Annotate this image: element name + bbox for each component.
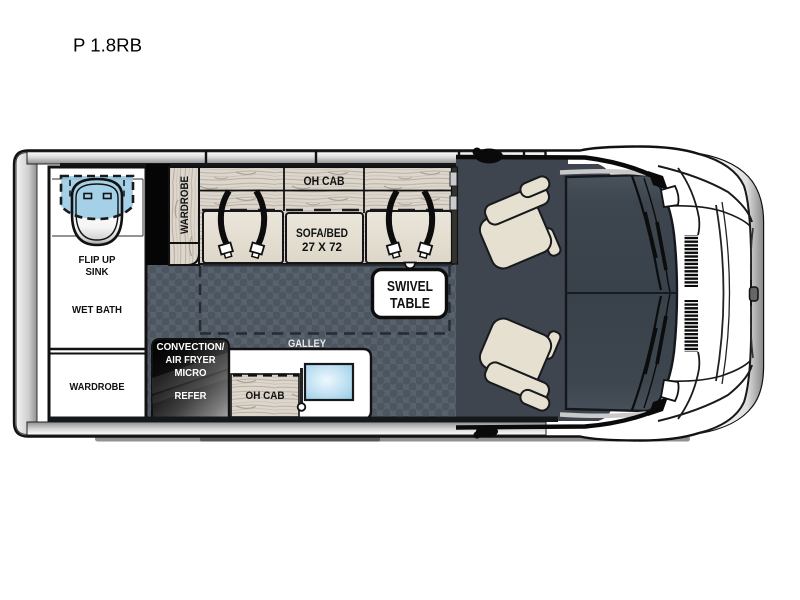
svg-text:AIR FRYER: AIR FRYER — [166, 354, 216, 366]
svg-text:WET BATH: WET BATH — [72, 304, 122, 316]
svg-text:OH CAB: OH CAB — [304, 176, 345, 188]
svg-text:CONVECTION/: CONVECTION/ — [157, 341, 225, 353]
svg-text:SOFA/BED: SOFA/BED — [296, 228, 348, 240]
svg-text:P 1.8RB: P 1.8RB — [73, 36, 142, 56]
svg-text:OH CAB: OH CAB — [246, 390, 285, 402]
svg-text:MICRO: MICRO — [175, 367, 207, 379]
svg-text:WARDROBE: WARDROBE — [70, 381, 125, 393]
svg-text:WARDROBE: WARDROBE — [179, 176, 191, 234]
svg-text:SINK: SINK — [86, 266, 109, 278]
svg-text:FLIP UP: FLIP UP — [79, 254, 116, 266]
svg-text:TABLE: TABLE — [390, 295, 430, 312]
svg-text:SWIVEL: SWIVEL — [387, 278, 433, 295]
svg-text:REFER: REFER — [175, 390, 207, 402]
svg-text:27 X 72: 27 X 72 — [302, 242, 342, 254]
